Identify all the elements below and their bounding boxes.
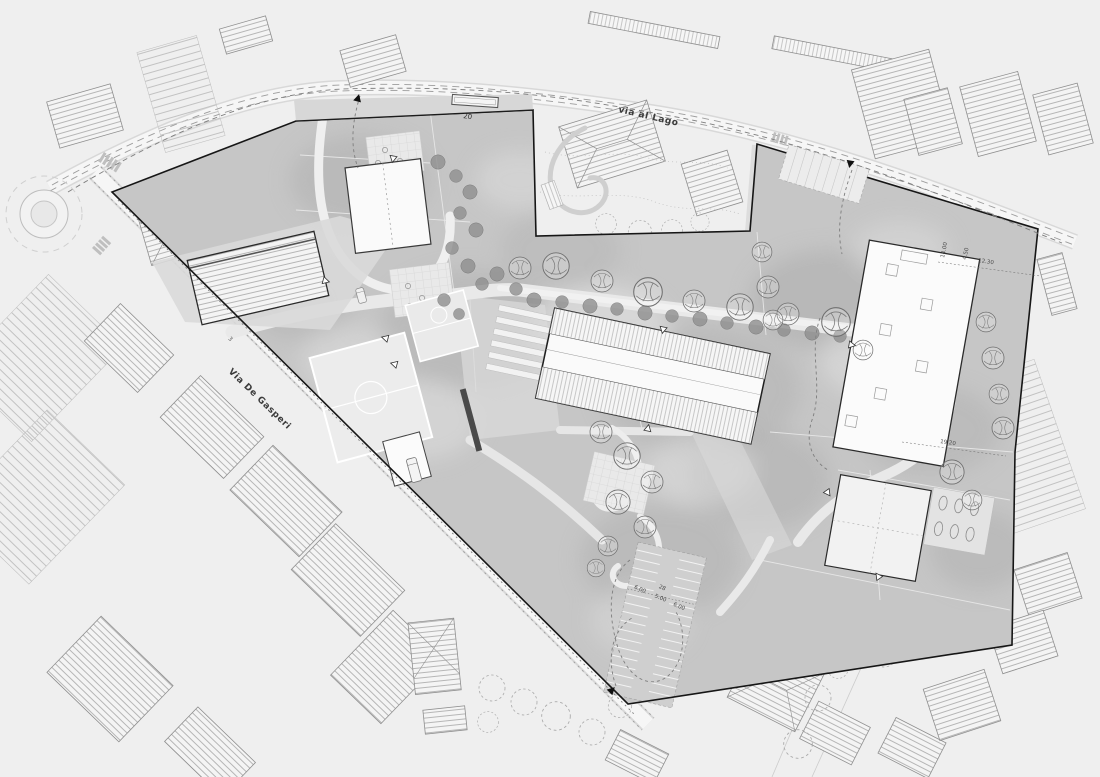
site-area: 6.00 5.00 6.00 28 bbox=[112, 110, 1038, 708]
context-house bbox=[923, 669, 1001, 740]
context-house bbox=[605, 730, 669, 777]
context-house bbox=[423, 706, 467, 734]
garden-deck bbox=[541, 180, 563, 209]
context-apartment-block bbox=[1033, 83, 1093, 155]
roundabout bbox=[6, 176, 82, 252]
context-house bbox=[165, 707, 256, 777]
planting-beds bbox=[924, 487, 995, 555]
path-south-of-hall bbox=[560, 430, 690, 432]
context-house bbox=[1037, 253, 1077, 316]
site-plan-drawing: 6.00 5.00 6.00 28 bbox=[0, 0, 1100, 777]
context-house bbox=[47, 84, 124, 148]
context-house bbox=[1014, 553, 1082, 616]
crosswalk bbox=[92, 236, 111, 256]
vineyard-strip bbox=[0, 410, 125, 584]
building-southeast bbox=[825, 475, 932, 582]
context-house bbox=[219, 16, 272, 54]
context-house bbox=[47, 616, 173, 742]
context-house bbox=[84, 304, 173, 393]
parcel-number-label: 3 bbox=[227, 336, 234, 343]
context-villa bbox=[681, 150, 743, 216]
bus-bay-number-label: 20 bbox=[463, 112, 473, 121]
building-northwest bbox=[345, 159, 431, 254]
context-apartment-block bbox=[960, 71, 1037, 156]
site-plan-canvas: 6.00 5.00 6.00 28 bbox=[0, 0, 1100, 777]
context-house bbox=[800, 701, 871, 765]
context-wall-strip bbox=[588, 12, 720, 49]
context-house-hip bbox=[408, 618, 461, 694]
context-house bbox=[340, 35, 406, 88]
